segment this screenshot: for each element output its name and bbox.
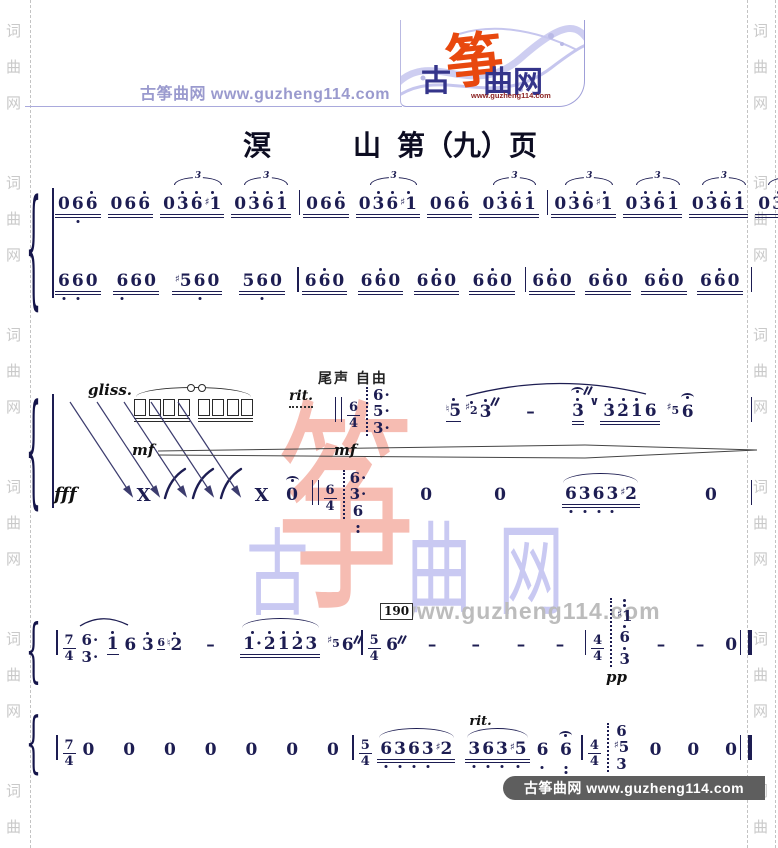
- note: 0: [444, 272, 456, 291]
- edge-watermark-char: 词: [6, 476, 21, 497]
- note-number: 6·: [82, 632, 99, 649]
- note-number: 0: [207, 272, 219, 291]
- dash-note: –: [548, 636, 572, 655]
- note: ♯2: [465, 400, 478, 417]
- note-group: 660: [529, 267, 575, 292]
- beamed-notes: 0361: [623, 190, 682, 215]
- note-number: 6: [700, 272, 712, 291]
- note: 0: [725, 636, 737, 655]
- harmonic-circle: [198, 384, 206, 392]
- augmentation-dot: ·: [93, 631, 98, 649]
- spacer: [465, 291, 468, 292]
- triplet-mark: 3: [565, 177, 613, 185]
- note-number: 3·: [82, 649, 99, 666]
- octave-dots-below: [569, 509, 572, 514]
- note-number: 3: [620, 651, 630, 668]
- note: 1: [524, 190, 536, 214]
- time-signature: 44: [591, 634, 604, 664]
- notation-line-3: rit.646·5·3·♮5♯23–3∨3216♯56: [50, 392, 754, 422]
- note: 0: [705, 486, 717, 505]
- dot: [261, 297, 264, 300]
- accidental-natural: ♮: [167, 638, 171, 649]
- note: 3: [579, 485, 591, 504]
- arpeggio-mark: [610, 598, 615, 668]
- page-title: 溟 山 第（九）页: [150, 124, 630, 164]
- note-number: ♯1: [205, 195, 222, 214]
- note: 0: [554, 195, 566, 214]
- note: 0: [327, 741, 339, 760]
- cluster-block: [241, 399, 253, 416]
- note: 0: [388, 272, 400, 291]
- note-number: 6: [58, 272, 70, 291]
- note: 6: [472, 272, 484, 291]
- beamed-notes: 036♯1: [160, 190, 224, 215]
- spacer: [632, 759, 648, 760]
- note: ♯5: [327, 638, 340, 650]
- dot: [541, 766, 544, 769]
- note: 6: [486, 267, 498, 291]
- edge-watermark-char: 曲: [6, 816, 21, 837]
- note-number: 6: [682, 403, 694, 422]
- accidental-sharp: ♯: [327, 635, 332, 646]
- note-group: 3216: [600, 397, 659, 422]
- x-notehead: X: [137, 487, 151, 505]
- spacer: [444, 654, 464, 655]
- note-number: 0: [705, 486, 717, 505]
- title-char-2: 山: [353, 124, 381, 164]
- note-group: 660: [414, 267, 460, 292]
- note-number: 0: [234, 195, 246, 214]
- note: 6: [602, 267, 614, 291]
- note-number: 0: [626, 195, 638, 214]
- note: 6: [444, 195, 456, 214]
- note-number: 6: [653, 195, 665, 214]
- edge-watermark-char: 词: [6, 20, 21, 41]
- note-number: 6: [714, 272, 726, 291]
- note: 0: [86, 272, 98, 291]
- note-group: 660: [302, 267, 348, 292]
- x-notehead: X: [255, 487, 269, 505]
- note-number: ♯2: [465, 405, 478, 417]
- note: 6: [588, 272, 600, 291]
- note: 6: [386, 636, 398, 655]
- barline: [751, 267, 753, 292]
- accidental-sharp: ♯: [620, 487, 625, 498]
- tremolo-mark: [353, 635, 363, 644]
- note: 3: [422, 740, 434, 759]
- edge-watermark-char: 网: [6, 700, 21, 721]
- spacer: [101, 654, 106, 655]
- note-number: 0: [306, 195, 318, 214]
- note: 0: [728, 272, 740, 291]
- note: 0: [500, 272, 512, 291]
- header-rule: [25, 106, 402, 107]
- note: 6: [361, 272, 373, 291]
- note-number: 6·: [373, 387, 390, 404]
- note: ♯1: [205, 190, 222, 214]
- note: 0: [616, 272, 628, 291]
- spacer: [700, 759, 724, 760]
- cluster-block: [178, 399, 190, 416]
- note: 6: [644, 272, 656, 291]
- note-number: 6: [546, 272, 558, 291]
- note: 6: [720, 190, 732, 214]
- note: 0: [626, 195, 638, 214]
- double-barline: [312, 480, 319, 505]
- time-signature: 54: [368, 634, 381, 664]
- slur: [379, 728, 454, 738]
- note-number: 6·: [350, 470, 367, 487]
- site-name-text: 古筝曲网 www.guzheng114.com: [0, 80, 390, 104]
- edge-watermark-char: 词: [6, 172, 21, 193]
- note-number: 0: [388, 272, 400, 291]
- note: 6: [116, 272, 128, 291]
- note: 6: [353, 503, 363, 520]
- note-group: 660: [697, 267, 743, 292]
- coda-free-tempo-label: 尾声 自由: [318, 368, 388, 388]
- beamed-notes: 660: [302, 267, 348, 292]
- beamed-notes: 363♯5: [465, 740, 529, 760]
- augmentation-dot: ·: [361, 485, 366, 503]
- note-number: 6: [645, 402, 657, 421]
- dot: [412, 765, 415, 768]
- beamed-notes: 3216: [600, 397, 659, 422]
- note: 3·: [82, 649, 99, 666]
- spacer: [488, 654, 509, 655]
- note: 0: [692, 195, 704, 214]
- note-number: 0: [616, 272, 628, 291]
- note: ♯1: [400, 190, 417, 214]
- spacer: [77, 504, 135, 505]
- note-number: 6: [72, 195, 84, 214]
- note-number: 3·: [350, 486, 367, 503]
- note: 0: [123, 741, 135, 760]
- note-number: 6: [157, 637, 165, 650]
- octave-dots-below: [356, 524, 359, 534]
- note-number: 6: [510, 195, 522, 214]
- note-number: 1: [733, 195, 745, 214]
- note-number: 3: [603, 402, 615, 421]
- accidental-sharp: ♯: [596, 197, 601, 208]
- octave-dots-below: [500, 764, 503, 769]
- note-number: 6: [720, 195, 732, 214]
- notation-line-4: fffXX0646·3·6006363♯20: [50, 475, 754, 505]
- dynamic-mf-label-2: mf: [334, 441, 356, 459]
- note: 6: [194, 272, 206, 291]
- double-barline: [335, 397, 342, 422]
- barline: [547, 190, 549, 215]
- dot: [356, 530, 359, 533]
- edge-watermark-char: 词: [6, 780, 21, 801]
- beamed-notes: 660: [641, 267, 687, 292]
- note: 6: [380, 740, 392, 759]
- chord: 6·3·: [82, 632, 99, 665]
- note-number: 6: [532, 272, 544, 291]
- note: 3: [480, 398, 492, 422]
- note-number: 5: [242, 272, 254, 291]
- triplet-mark: 3: [244, 177, 288, 185]
- spacer: [399, 654, 420, 655]
- triplet-mark: 3: [768, 177, 778, 185]
- crescendo-decrescendo-hairpin: [158, 445, 757, 458]
- note: 6: [342, 636, 354, 655]
- note: 6: [386, 190, 398, 214]
- system-brace-1: {: [26, 186, 42, 314]
- note: ♯1: [617, 598, 632, 625]
- note: 0: [306, 195, 318, 214]
- note: 2: [264, 630, 276, 654]
- note-number: 6: [408, 740, 420, 759]
- cluster-block-group: [198, 399, 254, 422]
- notation-line-2: 660660♯560560660660660660660660660660: [50, 262, 754, 292]
- octave-dots-below: [198, 296, 201, 301]
- note: 0: [430, 195, 442, 214]
- spacer: [462, 421, 464, 422]
- note-number: 3: [706, 195, 718, 214]
- note: 6: [374, 267, 386, 291]
- beamed-notes: 660: [469, 267, 515, 292]
- note: 3: [496, 740, 508, 759]
- note: 6: [256, 272, 268, 291]
- edge-watermark-char: 曲: [753, 360, 768, 381]
- note-number: 3: [572, 402, 584, 422]
- dot: [76, 220, 79, 223]
- spacer: [533, 654, 548, 655]
- note-number: 1: [524, 195, 536, 214]
- note-number: 0: [560, 272, 572, 291]
- note-number: 6: [262, 195, 274, 214]
- spacer: [542, 421, 570, 422]
- note: 3: [373, 190, 385, 214]
- note-number: 0: [58, 195, 70, 214]
- note-number: 2: [292, 635, 304, 654]
- chord-notes: 6♯53: [614, 723, 629, 773]
- cluster-blocks: [134, 399, 253, 422]
- note: 6: [700, 272, 712, 291]
- augmentation-dot: ·: [384, 402, 389, 420]
- spacer: [253, 421, 289, 422]
- cluster-block-group: [134, 399, 190, 422]
- chord-notes: 6·5·3·: [373, 387, 390, 437]
- note: 0: [672, 272, 684, 291]
- barline: [56, 630, 58, 655]
- note-number: ♯5: [510, 740, 527, 759]
- note-group: 3036♯1: [356, 190, 420, 215]
- note: 6: [138, 190, 150, 214]
- dot: [385, 765, 388, 768]
- spacer: [107, 291, 113, 292]
- spacer: [177, 759, 204, 760]
- edge-watermark-char: 网: [6, 548, 21, 569]
- octave-dots-below: [583, 509, 586, 514]
- edge-watermark-char: 曲: [6, 664, 21, 685]
- dynamic-pp-label: pp: [606, 668, 627, 686]
- note: 3: [248, 190, 260, 214]
- note-number: 6: [658, 272, 670, 291]
- note: 6: [714, 267, 726, 291]
- cluster-block: [227, 399, 239, 416]
- spacer: [393, 421, 445, 422]
- note-number: 0: [672, 272, 684, 291]
- barline: [352, 735, 354, 760]
- dot: [517, 765, 520, 768]
- note-number: 0: [554, 195, 566, 214]
- spacer: [165, 291, 171, 292]
- note-number: 3: [422, 740, 434, 759]
- edge-watermark-char: 词: [753, 20, 768, 41]
- note: 6: [319, 267, 331, 291]
- note-number: 0: [332, 272, 344, 291]
- note-number: 6: [486, 272, 498, 291]
- site-logo[interactable]: 筝 古 曲网 www.guzheng114.com: [400, 20, 585, 107]
- barline: [751, 397, 753, 422]
- spacer: [155, 654, 157, 655]
- note-number: 0: [692, 195, 704, 214]
- octave-dots-below: [121, 296, 124, 301]
- note: 3·: [350, 486, 367, 503]
- note-number: 6: [256, 272, 268, 291]
- augmentation-dot: ·: [361, 469, 366, 487]
- edge-watermark-char: 曲: [6, 512, 21, 533]
- octave-dots-below: [611, 509, 614, 514]
- watermark-gu: 古: [246, 528, 309, 623]
- beamed-notes: 6363♯2: [562, 485, 640, 505]
- footer-site-bar[interactable]: 古筝曲网 www.guzheng114.com: [503, 776, 765, 800]
- dot: [473, 765, 476, 768]
- note-number: 0: [687, 741, 699, 760]
- dot: [569, 510, 572, 513]
- note: 3: [606, 485, 618, 504]
- notation-mark: [495, 397, 500, 406]
- spacer: [549, 759, 558, 760]
- note-number: ♯5: [667, 405, 680, 417]
- note-number: ♯5: [327, 638, 340, 650]
- note: 3: [616, 756, 626, 773]
- note: 0: [205, 741, 217, 760]
- note: 3: [305, 635, 317, 654]
- note: 6: [532, 272, 544, 291]
- note-number: 6: [138, 195, 150, 214]
- note: 0: [494, 486, 506, 505]
- note: ♯2: [620, 485, 637, 504]
- time-signature: 54: [359, 739, 372, 769]
- note-number: ♯2: [620, 485, 637, 504]
- edge-watermark-char: 词: [753, 628, 768, 649]
- tone-cluster-symbol: [134, 387, 253, 422]
- note-number: 3: [248, 195, 260, 214]
- logo-url-text: www.guzheng114.com: [471, 91, 551, 100]
- octave-dots-below: [399, 764, 402, 769]
- note: 6: [510, 190, 522, 214]
- note: ♯1: [596, 190, 613, 214]
- note-number: 6: [353, 503, 363, 520]
- note-group: 066: [303, 190, 349, 215]
- note-number: 5·: [373, 403, 390, 420]
- note: 0: [332, 272, 344, 291]
- cluster-block: [212, 399, 224, 416]
- arpeggio-mark: [607, 723, 612, 773]
- note: 5·: [373, 403, 390, 420]
- note-number: 6: [620, 629, 630, 646]
- spacer: [79, 759, 82, 760]
- note: 3·: [373, 420, 390, 437]
- edge-watermark-char: 词: [6, 324, 21, 345]
- note: 6·: [82, 632, 99, 649]
- note: 3: [496, 190, 508, 214]
- note-number: ♮2: [167, 636, 182, 655]
- note-number: 6: [361, 272, 373, 291]
- note-number: 6: [380, 740, 392, 759]
- note: 0: [234, 195, 246, 214]
- note-group: 660: [641, 267, 687, 292]
- octave-dots-below: [76, 296, 79, 301]
- note-number: 0: [205, 741, 217, 760]
- spacer: [461, 759, 464, 760]
- edge-watermark-char: 网: [753, 548, 768, 569]
- slur: [242, 618, 319, 628]
- note-number: 6: [482, 740, 494, 759]
- note: ♯5: [667, 405, 680, 417]
- note: 1: [733, 190, 745, 214]
- note: 1: [276, 190, 288, 214]
- dash-note: –: [509, 636, 533, 655]
- note-number: 6: [305, 272, 317, 291]
- note-number: 0: [82, 741, 94, 760]
- chord-notes: 6·3·: [82, 632, 99, 665]
- time-signature: 74: [63, 634, 76, 664]
- note-number: 6: [582, 195, 594, 214]
- beamed-notes: ♯560: [172, 272, 222, 292]
- notation-line-1: 0660663036♯1303610663036♯1066303613036♯1…: [50, 185, 754, 215]
- beamed-notes: 036♯1: [551, 190, 615, 215]
- note: 3: [639, 190, 651, 214]
- note: 6: [130, 272, 142, 291]
- dash-note: –: [649, 636, 673, 655]
- final-barline: [740, 735, 752, 760]
- dash-note: –: [420, 636, 444, 655]
- rehearsal-mark-190: 190: [380, 603, 413, 620]
- note-group: ♯560: [172, 272, 222, 292]
- harmonic-circle: [187, 384, 195, 392]
- note-number: 6: [458, 195, 470, 214]
- note-number: 6: [616, 723, 626, 740]
- note-number: 6: [191, 195, 203, 214]
- note-group: 660: [469, 267, 515, 292]
- dot: [564, 766, 567, 769]
- note: 1·: [243, 630, 262, 654]
- edge-watermark-char: 曲: [6, 208, 21, 229]
- note-number: 6: [472, 272, 484, 291]
- dot: [623, 599, 626, 602]
- breath-mark: ∨: [589, 394, 599, 408]
- note-number: 6: [644, 272, 656, 291]
- note-number: 0: [650, 741, 662, 760]
- note: 0: [245, 741, 257, 760]
- note-group: 30361: [231, 190, 290, 215]
- note: 0: [286, 476, 299, 505]
- note: 6: [559, 731, 572, 760]
- note-number: 6: [374, 272, 386, 291]
- note-number: 2: [264, 635, 276, 654]
- triplet-mark: 3: [636, 177, 680, 185]
- accidental-natural: ♮: [446, 404, 450, 415]
- dot: [611, 510, 614, 513]
- octave-dots-below: [412, 764, 415, 769]
- triplet-mark: 3: [370, 177, 418, 185]
- spacer: [521, 291, 523, 292]
- spacer: [355, 654, 360, 655]
- edge-watermark-char: 词: [6, 628, 21, 649]
